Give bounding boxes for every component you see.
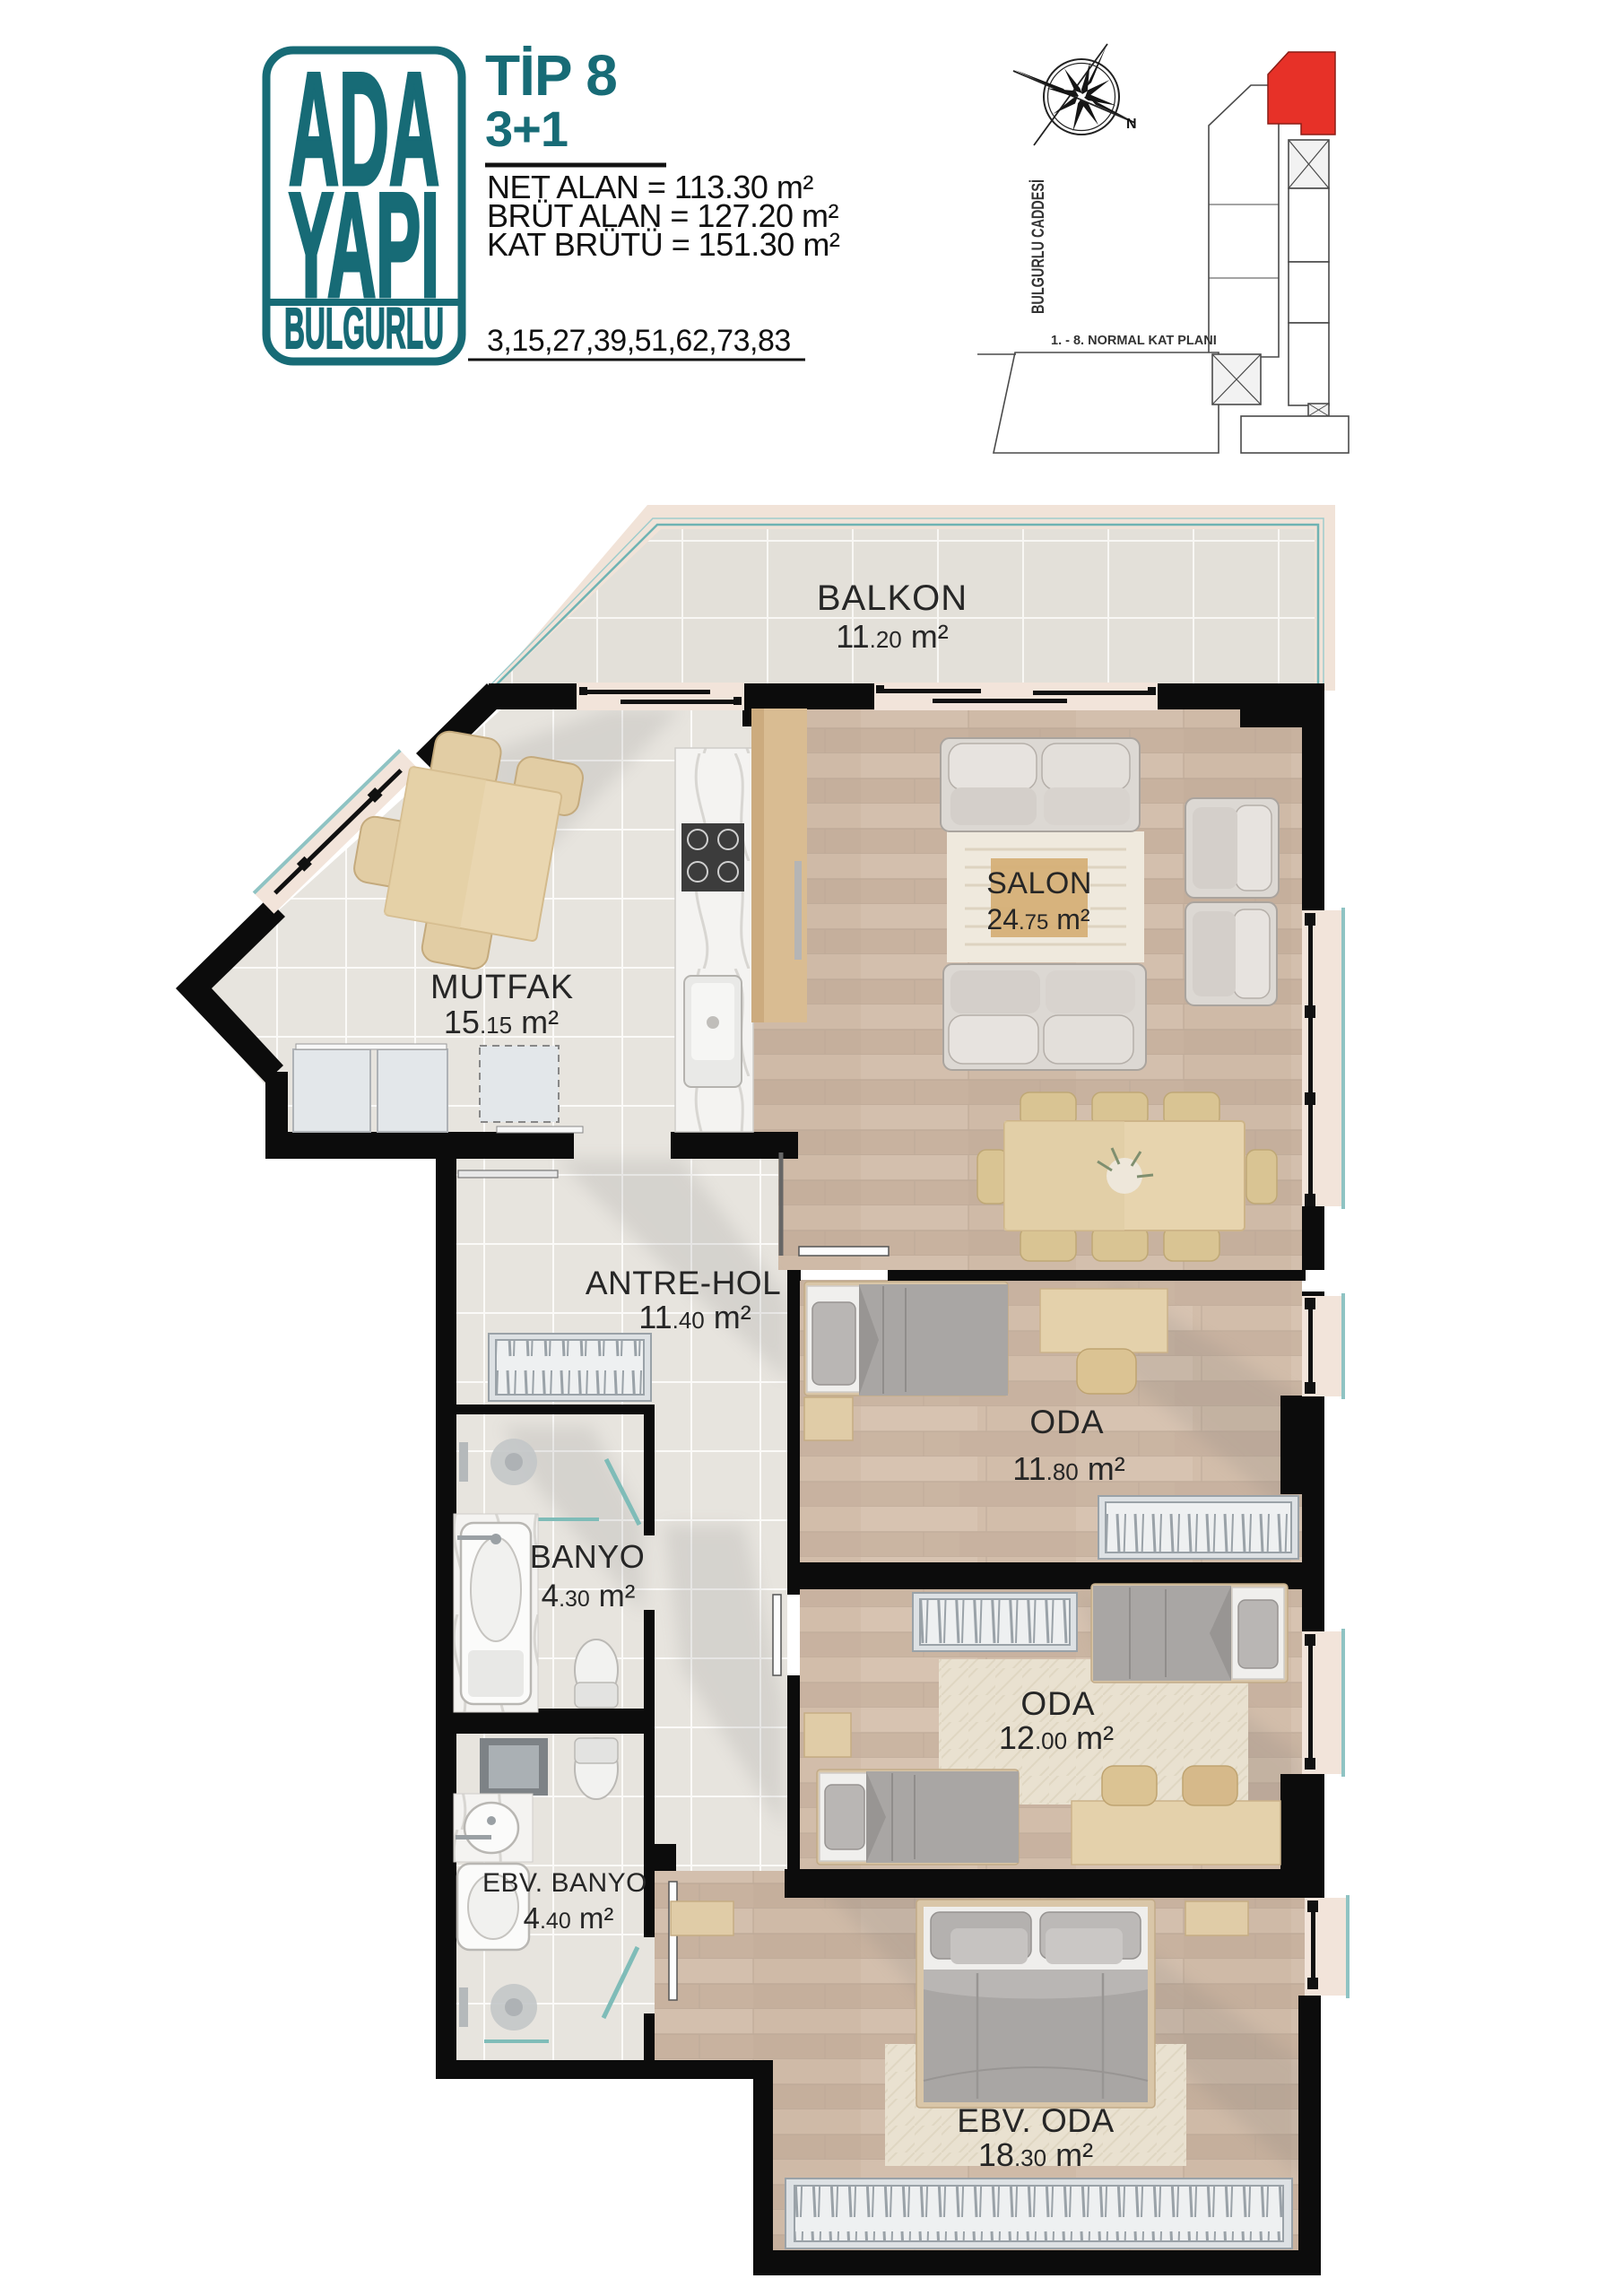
svg-text:3+1: 3+1 bbox=[485, 100, 568, 157]
svg-text:3,15,27,39,51,62,73,83: 3,15,27,39,51,62,73,83 bbox=[487, 324, 791, 358]
svg-text:SALON: SALON bbox=[986, 866, 1092, 900]
svg-text:EBV. BANYO: EBV. BANYO bbox=[482, 1868, 647, 1898]
svg-text:1. - 8. NORMAL KAT PLANI: 1. - 8. NORMAL KAT PLANI bbox=[1051, 334, 1217, 348]
svg-text:N: N bbox=[1126, 117, 1137, 132]
svg-text:EBV. ODA: EBV. ODA bbox=[957, 2102, 1114, 2139]
svg-text:BALKON: BALKON bbox=[817, 578, 968, 618]
svg-text:BULGURLU: BULGURLU bbox=[284, 296, 444, 361]
svg-text:ODA: ODA bbox=[1029, 1404, 1104, 1440]
svg-text:ODA: ODA bbox=[1020, 1685, 1095, 1722]
svg-text:MUTFAK: MUTFAK bbox=[430, 969, 574, 1006]
svg-text:BULGURLU CADDESİ: BULGURLU CADDESİ bbox=[1029, 179, 1048, 314]
svg-text:BANYO: BANYO bbox=[530, 1538, 646, 1575]
svg-text:TİP 8: TİP 8 bbox=[485, 43, 617, 108]
svg-text:KAT BRÜTÜ = 151.30 m²: KAT BRÜTÜ = 151.30 m² bbox=[487, 226, 840, 263]
svg-text:ANTRE-HOL: ANTRE-HOL bbox=[586, 1265, 781, 1301]
